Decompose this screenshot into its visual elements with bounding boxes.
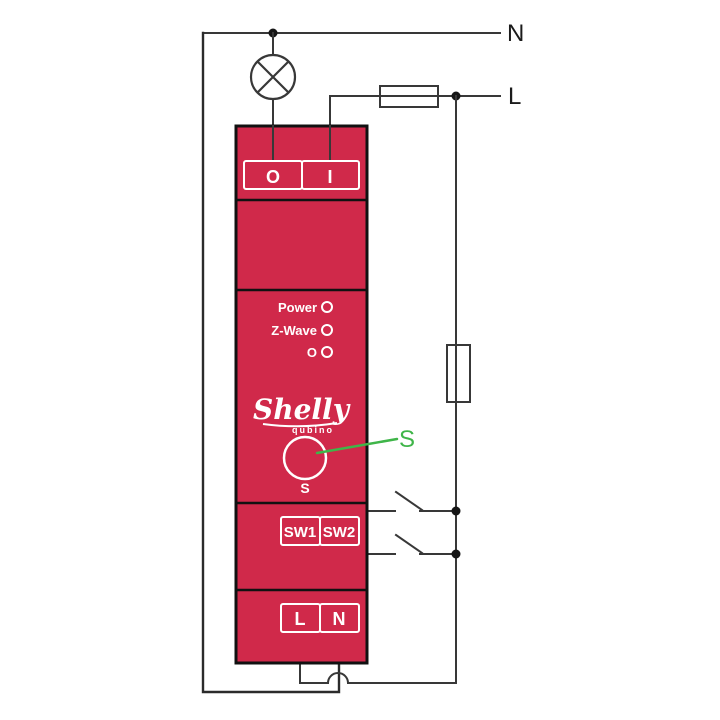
terminal-sw2-label: SW2: [323, 524, 356, 541]
terminal-l-label: L: [295, 609, 306, 629]
live-label: L: [508, 83, 521, 110]
s-annotation-label: S: [399, 426, 415, 453]
sw2-junction-dot: [452, 550, 461, 559]
led-zwave-label: Z-Wave: [271, 323, 317, 338]
terminal-i-label: I: [327, 167, 332, 187]
switch-1-icon: [396, 492, 422, 510]
sw1-junction-dot: [452, 507, 461, 516]
brand-shelly-label: Shelly: [253, 393, 351, 426]
terminal-o-label: O: [266, 167, 280, 187]
terminal-n-label: N: [333, 609, 346, 629]
lamp-icon: [251, 55, 295, 99]
terminal-sw1-label: SW1: [284, 524, 317, 541]
s-button-label: S: [300, 480, 309, 496]
led-power-label: Power: [278, 300, 317, 315]
brand-qubino-label: qubino: [292, 425, 334, 435]
shelly-device: O I Power Z-Wave O Shelly qubino: [236, 126, 367, 663]
switch-2-icon: [396, 535, 422, 553]
neutral-label: N: [507, 20, 524, 47]
led-output-label: O: [307, 345, 317, 360]
wiring-diagram: O I Power Z-Wave O Shelly qubino: [0, 0, 720, 720]
fuse-vertical-icon: [447, 345, 470, 402]
wiring-diagram-canvas: O I Power Z-Wave O Shelly qubino: [0, 0, 720, 720]
